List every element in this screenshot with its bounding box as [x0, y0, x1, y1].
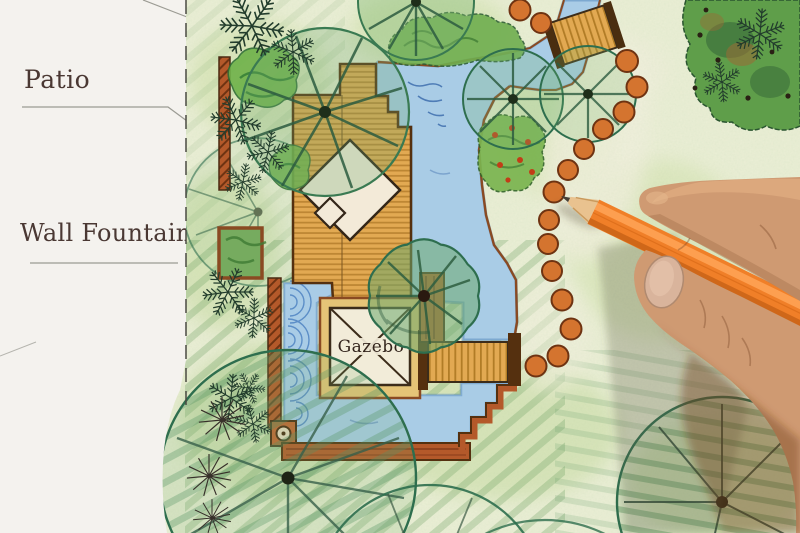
stepping-stone [552, 290, 573, 311]
tree-over-deck [241, 28, 409, 196]
stepping-stone [510, 0, 531, 21]
wall-fountain-label: Wall Fountain [20, 219, 192, 247]
stepping-stone [542, 261, 562, 281]
leader-line-patio [22, 107, 187, 121]
stepping-stone [548, 346, 569, 367]
stepping-stone [616, 50, 638, 72]
plan-canvas: Patio Wall Fountain [0, 0, 800, 533]
patio-label: Patio [24, 65, 90, 94]
stepping-stone [593, 119, 613, 139]
stepping-stone [558, 160, 578, 180]
boardwalk-cap-right [508, 333, 521, 386]
leader-line-bottom [0, 342, 36, 356]
stepping-stone [574, 139, 594, 159]
stepping-stone [539, 210, 559, 230]
planter [219, 228, 262, 278]
stepping-stone [531, 13, 551, 33]
stepping-stone [614, 102, 635, 123]
leader-line-top [143, 0, 187, 17]
stepping-stone [526, 356, 547, 377]
tree-scalloped [369, 239, 479, 352]
stepping-stone [561, 319, 582, 340]
stepping-stone [538, 234, 558, 254]
stepping-stone-at-pencil-tip [544, 182, 565, 203]
stepping-stone [627, 77, 648, 98]
margin-annotations: Patio Wall Fountain [0, 0, 192, 356]
landscape-plan-photo: Patio Wall Fountain [0, 0, 800, 533]
